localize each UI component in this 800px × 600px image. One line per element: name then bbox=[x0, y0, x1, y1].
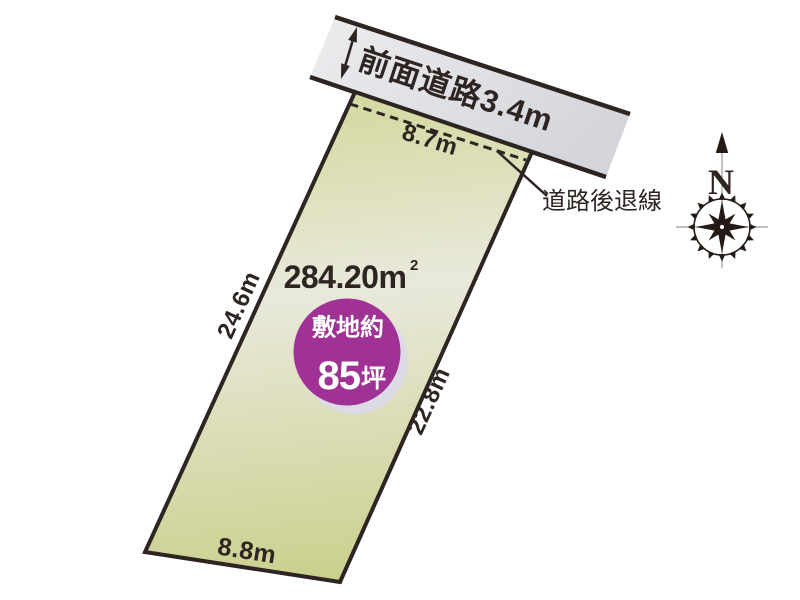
compass-ring-tick bbox=[746, 214, 754, 220]
compass: N bbox=[676, 132, 768, 268]
compass-ring-tick bbox=[709, 251, 715, 259]
compass-ring-tick bbox=[698, 244, 706, 252]
compass-ring-tick bbox=[690, 214, 698, 220]
compass-ring-tick bbox=[729, 251, 735, 259]
badge-tsubo-value: 85 bbox=[318, 354, 361, 398]
compass-ring-tick bbox=[698, 203, 706, 211]
compass-ring-tick bbox=[688, 224, 695, 231]
site-plan: 前面道路3.4m 8.7m 道路後退線 284.20m 2 24.6m 22.8… bbox=[0, 0, 800, 600]
compass-ring-tick bbox=[719, 254, 726, 261]
area-value: 284.20m bbox=[284, 259, 407, 295]
compass-ring-tick bbox=[746, 234, 754, 240]
site-plan-svg: 前面道路3.4m 8.7m 道路後退線 284.20m 2 24.6m 22.8… bbox=[0, 0, 800, 600]
area-superscript: 2 bbox=[410, 257, 418, 274]
badge-tsubo-unit: 坪 bbox=[361, 365, 386, 393]
compass-ring-tick bbox=[739, 203, 747, 211]
compass-ring-tick bbox=[739, 244, 747, 252]
compass-ring-tick bbox=[749, 224, 756, 231]
setback-label: 道路後退線 bbox=[542, 188, 662, 215]
badge-line1: 敷地約 bbox=[312, 314, 384, 342]
north-arrow-icon bbox=[716, 132, 728, 153]
compass-center-hole bbox=[720, 225, 724, 229]
compass-ring-tick bbox=[690, 234, 698, 240]
